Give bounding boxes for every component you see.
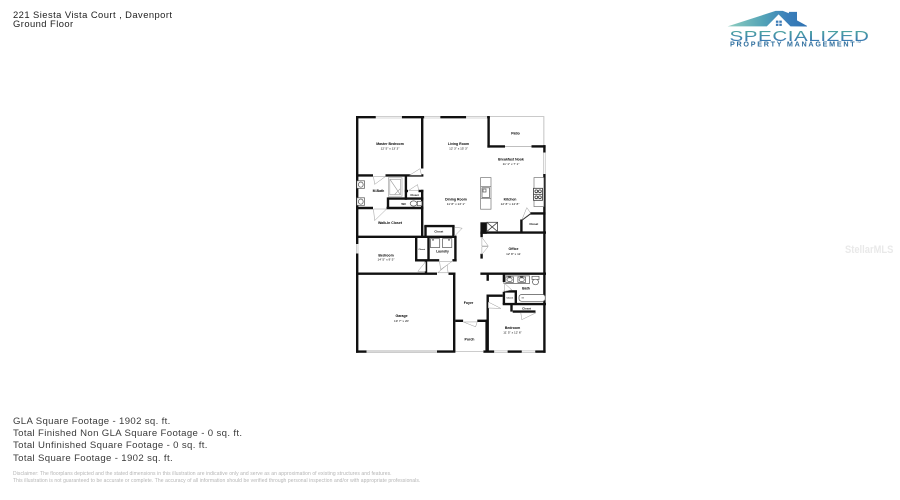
svg-text:14' 5" x 9' 5": 14' 5" x 9' 5" bbox=[378, 258, 395, 262]
svg-text:Bath: Bath bbox=[522, 287, 530, 291]
svg-text:Foyer: Foyer bbox=[464, 301, 474, 305]
svg-text:Kitchen: Kitchen bbox=[504, 197, 517, 201]
svg-text:12' 3" x 15' 3": 12' 3" x 15' 3" bbox=[449, 147, 468, 151]
svg-text:11' 8" x 13' 1": 11' 8" x 13' 1" bbox=[447, 202, 465, 206]
svg-text:Closet: Closet bbox=[410, 193, 418, 197]
svg-text:Dining Room: Dining Room bbox=[445, 197, 467, 201]
svg-text:11' 1" x 7' 1": 11' 1" x 7' 1" bbox=[503, 162, 520, 166]
svg-text:Living Room: Living Room bbox=[448, 142, 469, 146]
svg-text:19' 7" x 20': 19' 7" x 20' bbox=[394, 319, 409, 323]
svg-text:Breakfast Nook: Breakfast Nook bbox=[498, 158, 524, 162]
svg-text:Office: Office bbox=[509, 247, 519, 251]
svg-text:Master Bedroom: Master Bedroom bbox=[376, 142, 404, 146]
svg-text:TM: TM bbox=[856, 40, 861, 44]
svg-text:11' 5" x 12' 6": 11' 5" x 12' 6" bbox=[503, 330, 521, 334]
svg-text:Laundry: Laundry bbox=[436, 249, 449, 253]
svg-text:12' 5" x 13' 3": 12' 5" x 13' 3" bbox=[381, 147, 400, 151]
svg-text:PROPERTY MANAGEMENT: PROPERTY MANAGEMENT bbox=[730, 40, 856, 49]
svg-text:Closet: Closet bbox=[529, 222, 538, 226]
svg-text:Patio: Patio bbox=[511, 132, 520, 136]
svg-text:Bedroom: Bedroom bbox=[505, 326, 520, 330]
svg-text:Closet: Closet bbox=[418, 248, 425, 251]
svg-text:Closet: Closet bbox=[522, 307, 531, 311]
svg-text:12' 8" x 11': 12' 8" x 11' bbox=[506, 252, 521, 256]
svg-text:Walk-In Closet: Walk-In Closet bbox=[378, 221, 403, 225]
svg-text:Closet: Closet bbox=[506, 297, 513, 300]
svg-text:Garage: Garage bbox=[395, 314, 407, 318]
svg-text:M.Bath: M.Bath bbox=[373, 189, 385, 193]
svg-text:WC: WC bbox=[401, 202, 407, 206]
svg-text:Porch: Porch bbox=[465, 337, 475, 341]
svg-text:Closet: Closet bbox=[434, 230, 443, 234]
svg-text:12' 8" x 14' 8": 12' 8" x 14' 8" bbox=[501, 202, 520, 206]
